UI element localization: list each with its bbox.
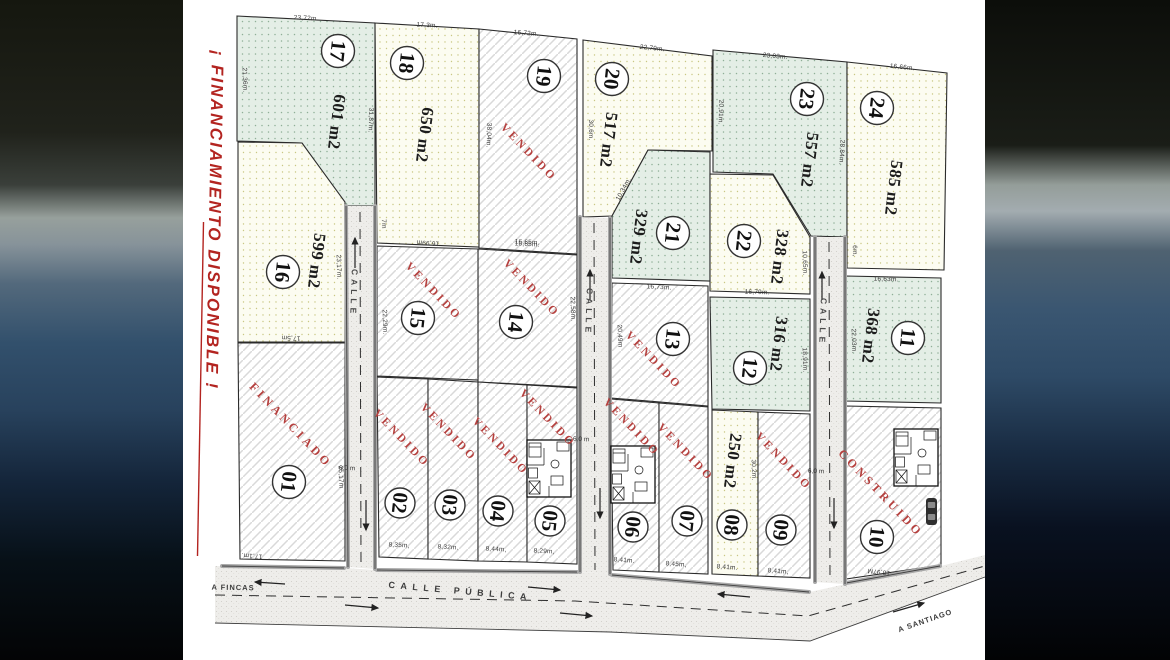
floorplan-icon — [527, 440, 571, 497]
calle-c-label: CALLE — [817, 298, 829, 347]
photo-background-left — [0, 0, 183, 660]
photo-background-right — [985, 0, 1170, 660]
lot-24-m-left: 6m, — [851, 245, 858, 257]
lot-02-parcel — [377, 377, 428, 559]
lot-04-m-bottom: 8,44m, — [485, 545, 506, 553]
lot-07-m-bottom: 8,45m, — [665, 560, 687, 568]
lot-16-number: 16 — [270, 260, 296, 283]
lot-08-m-bottom: 8,41m. — [716, 563, 738, 571]
lot-14-m-top: 16,65m. — [514, 238, 539, 246]
calle-b-label: CALLE — [583, 288, 595, 337]
lot-01-number: 01 — [276, 470, 302, 493]
lot-17-number: 17 — [325, 39, 351, 62]
lot-07-number: 07 — [674, 509, 700, 532]
to-fincas-label: A FINCAS — [211, 583, 254, 593]
floorplan-icon — [611, 446, 655, 503]
lot-17-m-left: 21,36m. — [241, 67, 249, 92]
lot-10-number: 10 — [864, 525, 890, 548]
lot-19-number: 19 — [531, 64, 557, 87]
lot-08-m-right: 30,2m. — [750, 459, 758, 480]
lot-22-m-bottom: 16,79m. — [744, 289, 769, 297]
lot-16-m-right: 23,17m. — [335, 254, 343, 279]
lot-03-number: 03 — [437, 493, 463, 516]
calle-b-width-label: 6,0 m — [573, 436, 590, 444]
lot-23-m-left: 20,91m. — [717, 99, 725, 124]
lot-14-number: 14 — [503, 310, 529, 334]
lot-21-m-bottom: 16,73m. — [646, 283, 671, 291]
lot-14-m-right: 22,58m. — [569, 296, 577, 321]
calle-c-width-label: 6,0 m — [808, 468, 825, 476]
lot-11-number: 11 — [895, 327, 921, 349]
floorplan-icon — [894, 429, 938, 486]
lot-16-m-bottom: 17,5m — [281, 334, 300, 342]
lot-12-number: 12 — [737, 356, 763, 379]
lot-22-m-right: 10,65m. — [801, 250, 809, 275]
lot-18-m-top: 17,3m. — [416, 21, 437, 29]
lotification-plan: ¡ FINANCIAMIENTO DISPONIBLE ! — [0, 0, 1170, 660]
lot-18-number: 18 — [394, 51, 420, 74]
car-icon — [926, 498, 937, 525]
lot-22-number: 22 — [731, 229, 757, 252]
lot-24-number: 24 — [864, 96, 890, 120]
lot-09-m-bottom: 8,41m, — [767, 567, 789, 575]
lot-19-parcel — [479, 29, 577, 254]
lot-17-m-right: 31,87m. — [367, 107, 375, 132]
lot-03-m-bottom: 8,32m. — [437, 543, 458, 551]
lot-21-number: 21 — [660, 221, 686, 244]
lot-08-number: 08 — [719, 513, 745, 536]
lot-13-m-left: 20,49m — [616, 324, 624, 347]
lot-12-parcel — [710, 297, 810, 411]
lot-15-m-left: 22,29m. — [381, 309, 389, 334]
lot-13-number: 13 — [660, 327, 686, 350]
lot-23-number: 23 — [794, 87, 820, 110]
lot-19-m-left: 38,04m. — [485, 122, 493, 147]
lot-18-m-side: 7m — [380, 219, 387, 229]
lot-12-m-right: 18,91m. — [801, 347, 809, 372]
lot-15-number: 15 — [405, 306, 431, 329]
lot-01-parcel — [238, 343, 345, 561]
lot-17-m-top: 23,72m. — [293, 14, 318, 22]
lot-05-m-bottom: 8,29m, — [533, 547, 554, 555]
lot-03-parcel — [428, 379, 478, 561]
lot-05-number: 05 — [537, 509, 563, 532]
lot-23-m-right: 28,84m. — [837, 139, 845, 164]
lot-24-m-bottom: 16,63m. — [873, 276, 898, 284]
lot-04-number: 04 — [485, 499, 511, 523]
lot-02-m-bottom: 8,35m, — [388, 541, 409, 549]
lot-02-number: 02 — [387, 491, 413, 514]
lot-20-m-left: 30,6m. — [587, 119, 594, 140]
calle-a-label: CALLE — [348, 269, 360, 318]
lot-06-number: 06 — [620, 515, 646, 538]
lot-06-m-bottom: 8,41m. — [613, 556, 635, 564]
lot-01-m-bottom: 17,1m. — [241, 551, 263, 559]
lot-20-number: 20 — [599, 67, 625, 90]
street-calle-c — [813, 237, 845, 584]
calle-a-width-label: 6,0 m — [339, 465, 356, 473]
lot-09-number: 09 — [768, 518, 794, 541]
lot-11-m-left: 22,03m. — [850, 328, 858, 353]
